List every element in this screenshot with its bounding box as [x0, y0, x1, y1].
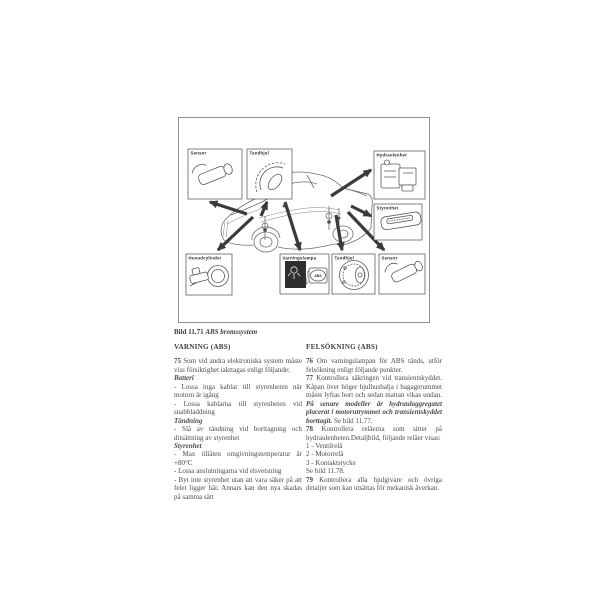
paragraph: 75 Som vid andra elektroniska system mås… — [174, 357, 302, 374]
callout-box-sensor-front: Sensor — [188, 149, 242, 199]
scanned-manual-page: { "figure": { "caption": { "prefix": "Bi… — [0, 0, 610, 610]
paragraph: 3 - Kontaktstycke — [306, 459, 442, 467]
callout-label: Styrenhet — [377, 206, 399, 211]
figure-caption: Bild 11.71 ABS bromssystem — [174, 328, 257, 336]
callout-label: Hydraulenhet — [377, 153, 408, 158]
diagram-canvas: Sensor Tandhjul Hydraulenhet — [179, 118, 429, 322]
callout-label: Varningslampa — [283, 256, 317, 261]
troubleshooting-section-title: FELSÖKNING (ABS) — [306, 343, 442, 351]
callout-label: Tandhjul — [335, 256, 355, 261]
warning-column: VARNING (ABS) 75 Som vid andra elektroni… — [174, 343, 302, 501]
paragraph: - Max tillåten omgivningstemperatur är +… — [174, 450, 302, 467]
callout-box-hydraulenhet: Hydraulenhet — [374, 151, 425, 199]
paragraph: Batteri — [174, 374, 302, 382]
callout-box-huvudcylinder: Huvudcylinder — [186, 254, 232, 295]
figure-number: Bild 11.71 — [174, 328, 204, 336]
callout-box-tandhjul-front: Tandhjul — [247, 149, 292, 199]
paragraph: 79 Kontrollera alla hjulgivare och övrig… — [306, 476, 442, 493]
abs-system-diagram: Sensor Tandhjul Hydraulenhet — [178, 117, 430, 323]
callout-label: Tandhjul — [250, 151, 270, 156]
paragraph: Se bild 11.78. — [306, 467, 442, 475]
paragraph: 76 Om varningslampan för ABS tänds, utfö… — [306, 357, 442, 374]
arrow-to-tandhjul-front — [261, 202, 267, 216]
paragraph: - Lossa kablarna till styrenheten vid sn… — [174, 400, 302, 417]
paragraph: - Byt inte styrenhet utan att vara säker… — [174, 476, 302, 501]
callout-box-tandhjul-rear: Tandhjul — [332, 254, 375, 294]
arrow-to-sensor-front — [210, 202, 247, 214]
callout-box-styrenhet: Styrenhet — [374, 204, 422, 240]
paragraph: 78 Kontrollera reläerna som sitter på hy… — [306, 425, 442, 442]
paragraph: 1 - Ventilrelä — [306, 442, 442, 450]
paragraph: - Slå av tändning vid borttagning och di… — [174, 425, 302, 442]
arrow-to-styrenhet — [351, 206, 371, 216]
callout-box-varningslampa: Varningslampa ABS — [280, 254, 329, 294]
tooth-wheel-rear-icon — [340, 261, 369, 290]
callout-label: Huvudcylinder — [189, 256, 222, 261]
troubleshooting-column: FELSÖKNING (ABS) 76 Om varningslampan fö… — [306, 343, 442, 493]
callout-box-sensor-rear: Sensor — [379, 252, 425, 294]
figure-title: ABS bromssystem — [205, 328, 257, 336]
paragraph: - Lossa anslutningarna vid elsvetsning — [174, 467, 302, 475]
paragraph: 2 - Motorrelä — [306, 450, 442, 458]
paragraph: Tändning — [174, 417, 302, 425]
troubleshooting-paragraphs: 76 Om varningslampan för ABS tänds, utfö… — [306, 357, 442, 492]
warning-section-title: VARNING (ABS) — [174, 343, 302, 351]
callout-label: Sensor — [191, 151, 207, 156]
warning-paragraphs: 75 Som vid andra elektroniska system mås… — [174, 357, 302, 501]
lamp-text: ABS — [314, 274, 322, 278]
paragraph: Styrenhet — [174, 442, 302, 450]
paragraph: 77 Kontrollera säkringen vid transientsk… — [306, 374, 442, 425]
paragraph: - Lossa inga kablar till styrenheten när… — [174, 383, 302, 400]
callout-label: Sensor — [382, 256, 398, 261]
